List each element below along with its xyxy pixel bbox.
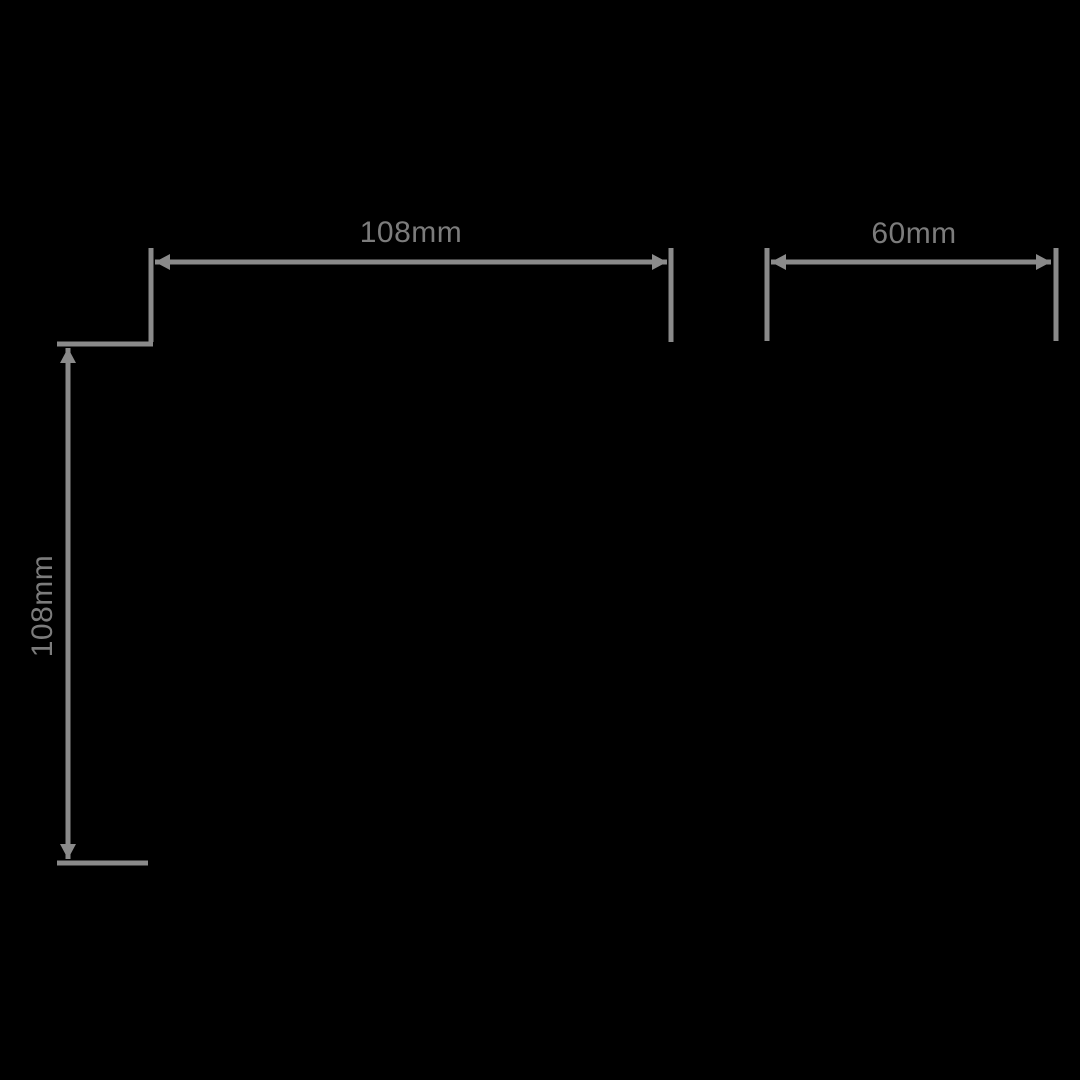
front-width-arrowhead-end (652, 254, 667, 270)
front-height-arrowhead-start (60, 348, 76, 363)
front-width-arrowhead-start (155, 254, 170, 270)
dimension-diagram: 108mm 60mm 108mm (0, 0, 1080, 1080)
side-width-arrowhead-start (771, 254, 786, 270)
front-height-arrowhead-end (60, 844, 76, 859)
dimension-svg (0, 0, 1080, 1080)
side-width-dimension-group (767, 248, 1056, 341)
side-width-arrowhead-end (1036, 254, 1051, 270)
front-height-dimension-group (57, 344, 153, 863)
side-width-dimension-label: 60mm (871, 219, 956, 249)
front-width-dimension-label: 108mm (360, 218, 463, 248)
front-width-dimension-group (151, 248, 671, 342)
front-height-dimension-label: 108mm (28, 555, 58, 658)
